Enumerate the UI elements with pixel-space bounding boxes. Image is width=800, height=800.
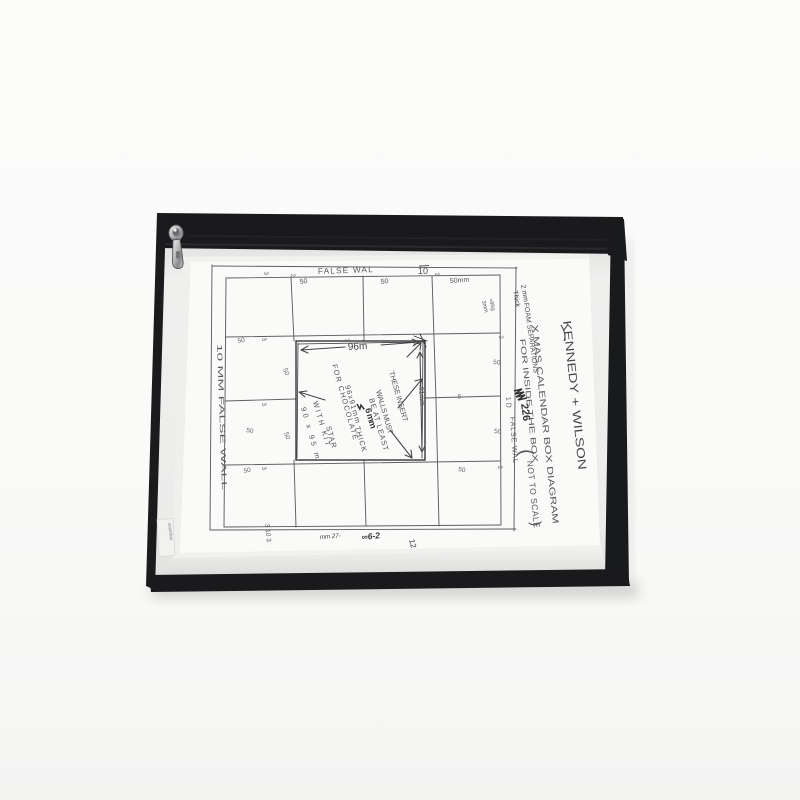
svg-text:10: 10 — [418, 266, 428, 276]
svg-text:mm 27-: mm 27- — [320, 533, 341, 541]
svg-text:50: 50 — [493, 359, 501, 367]
svg-text:91mm: 91mm — [417, 387, 425, 407]
svg-text:1 D: 1 D — [504, 397, 512, 408]
svg-text:50: 50 — [494, 428, 502, 436]
svg-text:50: 50 — [380, 278, 389, 286]
svg-text:96m: 96m — [348, 341, 368, 353]
svg-text:∞6-2: ∞6-2 — [361, 530, 381, 542]
svg-text:50: 50 — [299, 278, 308, 286]
svg-text:50mm: 50mm — [450, 277, 470, 285]
